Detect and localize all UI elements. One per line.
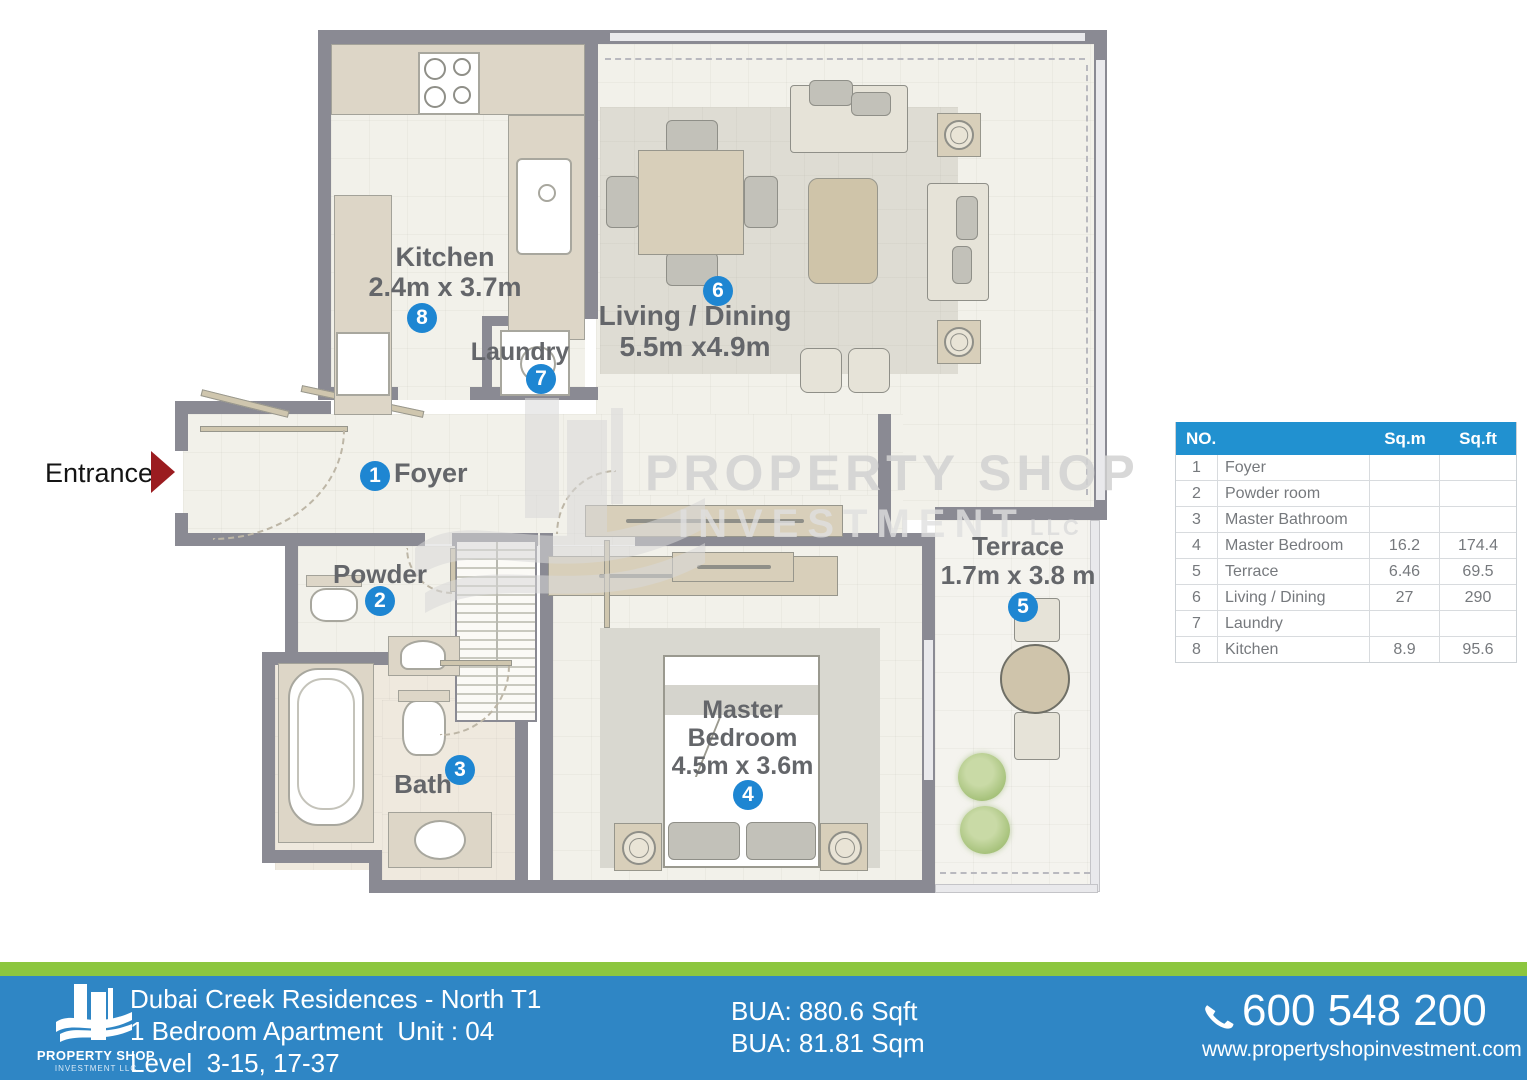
sink-drain-icon: [538, 184, 556, 202]
bathtub: [288, 668, 364, 826]
powder-left-wall: [285, 533, 298, 665]
bedroom-bottom-wall: [375, 880, 935, 893]
powder-label: Powder: [320, 560, 440, 589]
footer-website: www.propertyshopinvestment.com: [1202, 1038, 1502, 1062]
watermark-text: PROPERTY SHOP: [645, 444, 1140, 502]
powder-toilet: [310, 588, 358, 622]
bath-sink: [414, 820, 466, 860]
bed-pillow: [668, 822, 740, 860]
terrace-badge: 5: [1008, 592, 1038, 622]
area-table: NO. Sq.m Sq.ft 1Foyer 2Powder room 3Mast…: [1175, 422, 1517, 663]
footer-level: Level 3-15, 17-37: [130, 1048, 340, 1079]
lamp-icon: [828, 831, 862, 865]
entrance-label: Entrance: [45, 458, 153, 489]
burner-icon: [424, 86, 446, 108]
nightstand: [614, 823, 662, 871]
terrace-rail-dash: [940, 872, 1090, 874]
burner-icon: [453, 86, 471, 104]
col-sqm-header: Sq.m: [1370, 422, 1440, 455]
living-badge: 6: [703, 276, 733, 306]
plant: [960, 806, 1010, 854]
burner-icon: [453, 58, 471, 76]
tub-inner: [297, 678, 355, 810]
kitchen-label: Kitchen 2.4m x 3.7m: [350, 242, 540, 302]
dining-table: [638, 150, 744, 255]
top-curtain-dash: [605, 58, 1085, 60]
stove: [418, 52, 480, 115]
footer-project-title: Dubai Creek Residences - North T1: [130, 984, 541, 1015]
col-sqft-header: Sq.ft: [1440, 422, 1516, 455]
right-window: [1096, 60, 1105, 500]
table-row: 5Terrace6.4669.5: [1176, 558, 1516, 584]
bath-left-wall: [262, 652, 275, 862]
phone-icon: [1202, 1000, 1236, 1034]
kitchen-sink: [516, 158, 572, 255]
table-row: 2Powder room: [1176, 480, 1516, 506]
table-row: 6Living / Dining27290: [1176, 584, 1516, 610]
col-no-header: NO.: [1176, 422, 1370, 455]
pouf: [848, 348, 890, 393]
terrace-table: [1000, 644, 1070, 714]
footer-phone: 600 548 200: [1242, 986, 1490, 1036]
kitchen-living-wall: [585, 44, 598, 319]
powder-badge: 2: [365, 586, 395, 616]
kitchen-left-appliance: [336, 332, 390, 396]
terrace-label: Terrace 1.7m x 3.8 m: [938, 532, 1098, 590]
vestibule-left-wall-a: [175, 401, 188, 451]
terrace-door-glass: [924, 640, 933, 780]
terrace-bottom-rail: [935, 884, 1098, 893]
nightstand: [820, 823, 868, 871]
table-row: 8Kitchen8.995.6: [1176, 636, 1516, 662]
dresser-handle: [697, 565, 771, 569]
table-row: 4Master Bedroom16.2174.4: [1176, 532, 1516, 558]
bed-pillow: [746, 822, 816, 860]
sofa: [790, 85, 908, 153]
footer-bua-sqft: BUA: 880.6 Sqft: [731, 996, 917, 1027]
footer-unit: 1 Bedroom Apartment Unit : 04: [130, 1016, 494, 1047]
pouf: [800, 348, 842, 393]
master-label: Master Bedroom 4.5m x 3.6m: [665, 696, 820, 780]
side-table: [937, 113, 981, 157]
sofa-pillow: [809, 80, 853, 106]
master-badge: 4: [733, 780, 763, 810]
living-label: Living / Dining 5.5m x4.9m: [595, 300, 795, 363]
coffee-table: [808, 178, 878, 284]
chaise-pillow: [952, 246, 972, 284]
plant: [958, 753, 1006, 801]
bath-badge: 3: [445, 755, 475, 785]
lamp-icon: [622, 831, 656, 865]
dining-chair: [606, 176, 640, 228]
floorplan-page: PROPERTY SHOP INVESTMENT LLC Entrance Ki…: [0, 0, 1527, 1080]
side-table: [937, 320, 981, 364]
sofa-pillow: [851, 92, 891, 116]
dining-chair: [666, 120, 718, 154]
footer-bar: PROPERTY SHOP INVESTMENT LLC Dubai Creek…: [0, 976, 1527, 1080]
terrace-chair: [1014, 712, 1060, 760]
kitchen-left-wall: [318, 30, 331, 400]
table-row: 3Master Bathroom: [1176, 506, 1516, 532]
area-table-header: NO. Sq.m Sq.ft: [1176, 422, 1516, 455]
footer-green-strip: [0, 962, 1527, 976]
chaise-pillow: [956, 196, 978, 240]
table-row: 1Foyer: [1176, 455, 1516, 480]
lounge-chaise: [927, 183, 989, 301]
bath-bottom-wall: [262, 850, 382, 863]
dining-chair: [744, 176, 778, 228]
laundry-label: Laundry: [455, 338, 585, 366]
right-curtain-dash: [1086, 65, 1088, 495]
foyer-label: Foyer: [394, 458, 468, 488]
burner-icon: [424, 58, 446, 80]
table-row: 7Laundry: [1176, 610, 1516, 636]
lamp-icon: [944, 120, 974, 150]
foyer-badge: 1: [360, 461, 390, 491]
top-window: [610, 33, 1085, 41]
entrance-arrow-icon: [151, 451, 175, 493]
laundry-badge: 7: [526, 364, 556, 394]
lamp-icon: [944, 327, 974, 357]
watermark-logo: [415, 378, 705, 628]
footer-bua-sqm: BUA: 81.81 Sqm: [731, 1028, 925, 1059]
kitchen-badge: 8: [407, 303, 437, 333]
